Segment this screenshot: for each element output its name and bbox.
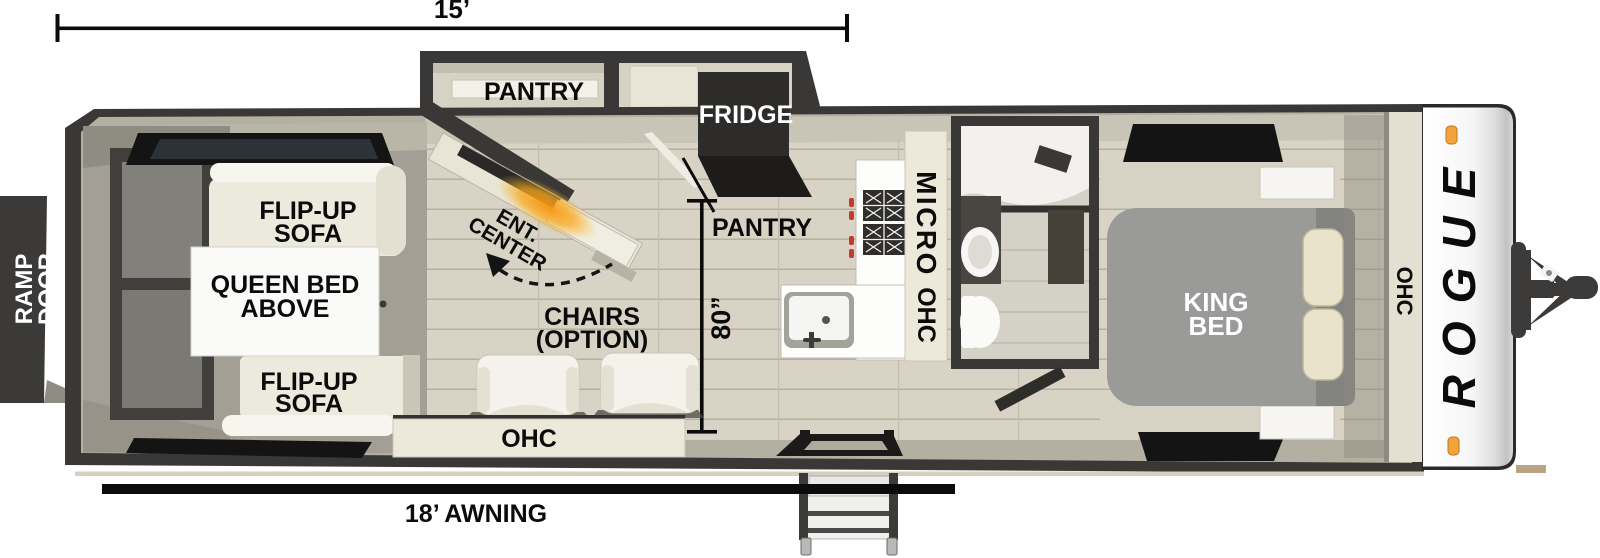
svg-text:PANTRY: PANTRY xyxy=(484,78,584,106)
svg-text:18’ AWNING: 18’ AWNING xyxy=(405,500,547,528)
svg-text:DOOR: DOOR xyxy=(34,253,61,325)
svg-text:(OPTION): (OPTION) xyxy=(536,326,649,354)
svg-text:OHC: OHC xyxy=(501,425,557,453)
svg-text:ROGUE: ROGUE xyxy=(1433,150,1485,409)
svg-text:OHC: OHC xyxy=(1392,267,1417,316)
svg-text:MICRO: MICRO xyxy=(911,171,942,277)
svg-text:OHC: OHC xyxy=(912,287,940,343)
svg-text:ABOVE: ABOVE xyxy=(241,295,330,323)
svg-text:BED: BED xyxy=(1189,311,1244,341)
svg-text:PANTRY: PANTRY xyxy=(712,214,812,242)
svg-text:15’: 15’ xyxy=(434,0,470,24)
svg-text:FRIDGE: FRIDGE xyxy=(699,101,793,129)
svg-text:80”: 80” xyxy=(706,296,736,340)
svg-text:SOFA: SOFA xyxy=(275,390,343,418)
svg-text:SOFA: SOFA xyxy=(274,220,342,248)
